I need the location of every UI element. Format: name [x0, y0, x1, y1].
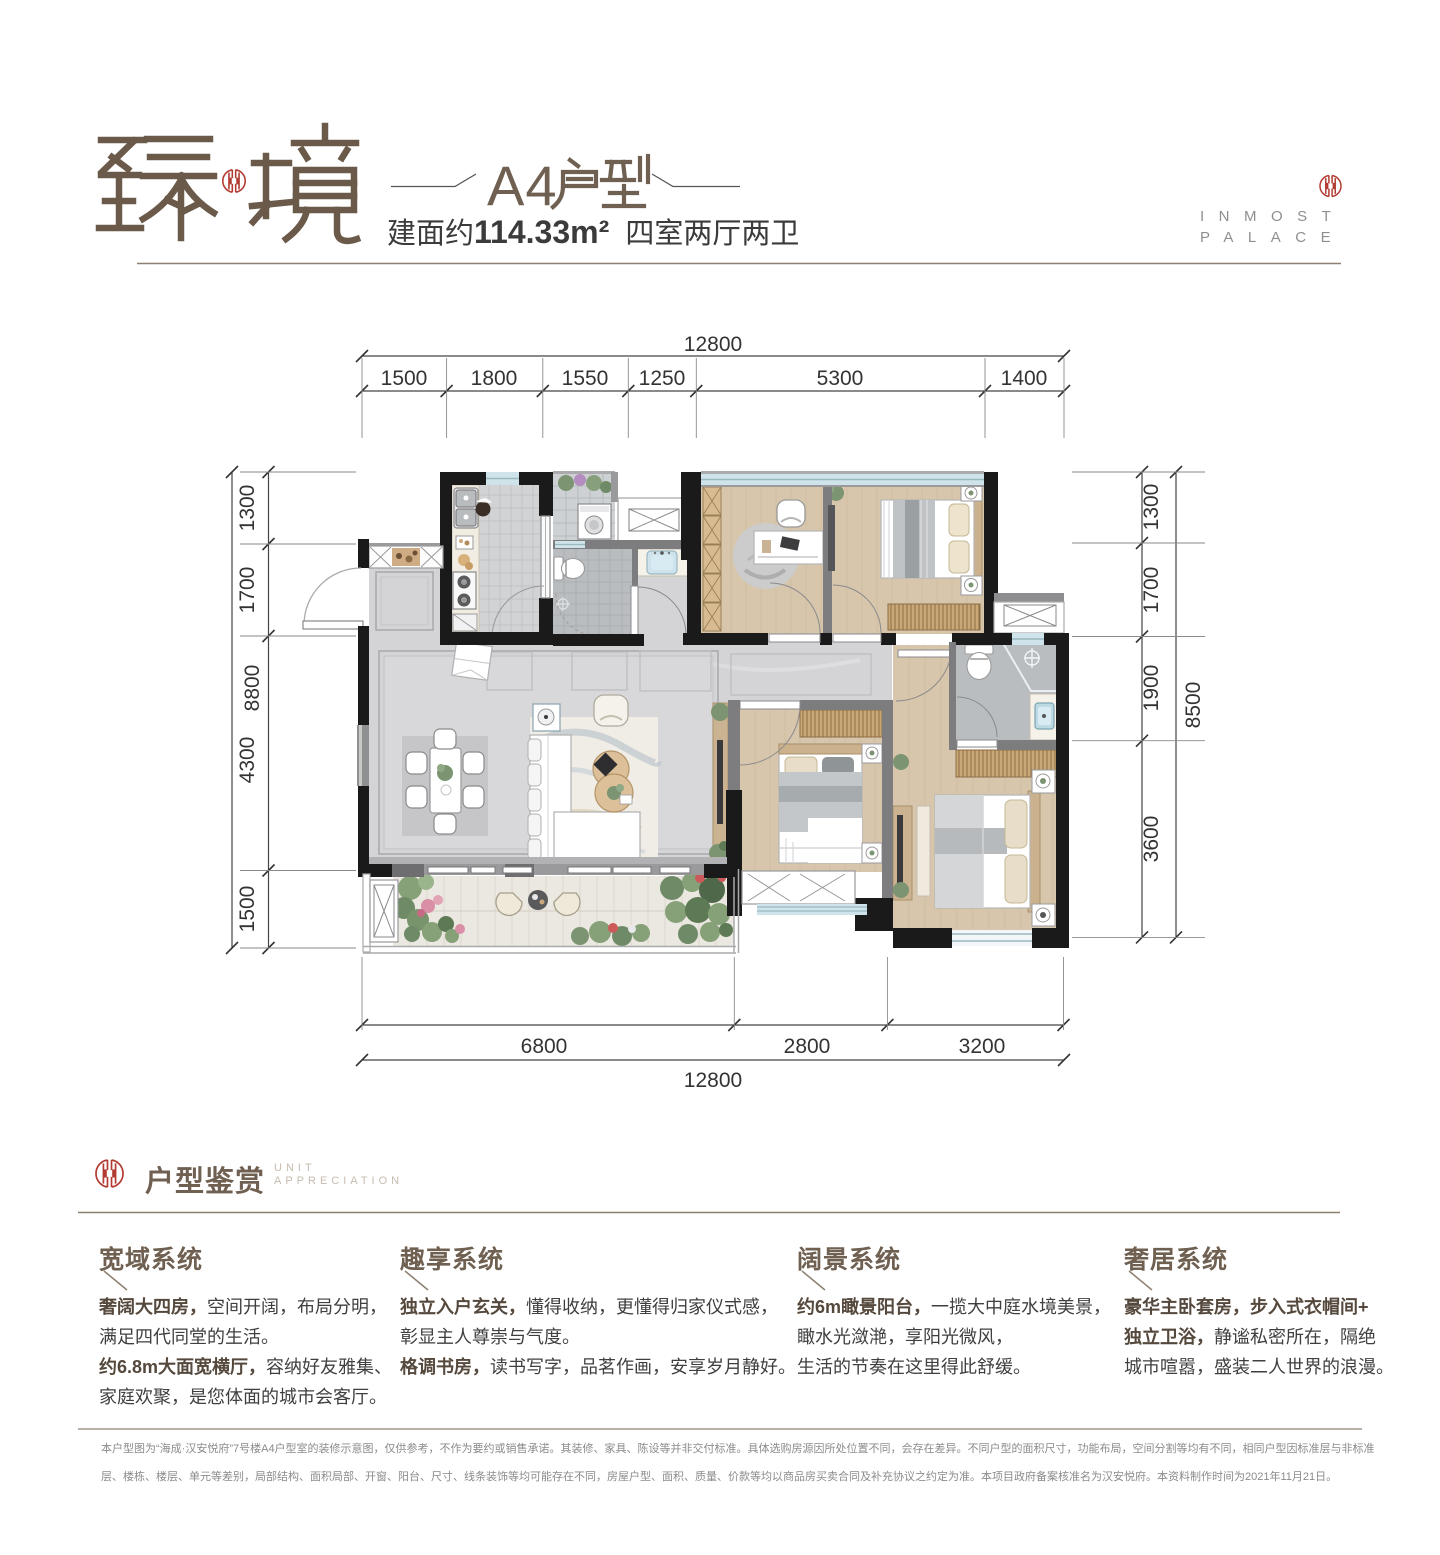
svg-text:5300: 5300 [817, 367, 864, 390]
svg-text:1700: 1700 [236, 567, 259, 614]
svg-text:1400: 1400 [1001, 367, 1048, 390]
svg-text:2800: 2800 [784, 1035, 831, 1058]
svg-text:12800: 12800 [684, 333, 742, 356]
svg-text:1700: 1700 [1140, 567, 1163, 614]
svg-text:1800: 1800 [471, 367, 518, 390]
svg-text:4300: 4300 [236, 737, 259, 784]
svg-text:1500: 1500 [236, 886, 259, 933]
svg-text:1300: 1300 [1140, 484, 1163, 531]
svg-text:3600: 3600 [1140, 816, 1163, 863]
svg-text:6800: 6800 [521, 1035, 568, 1058]
svg-text:1250: 1250 [639, 367, 686, 390]
svg-text:3200: 3200 [959, 1035, 1006, 1058]
svg-text:1300: 1300 [236, 485, 259, 532]
svg-text:1500: 1500 [381, 367, 428, 390]
svg-text:1550: 1550 [562, 367, 609, 390]
svg-text:1900: 1900 [1140, 665, 1163, 712]
svg-text:12800: 12800 [684, 1069, 742, 1092]
svg-text:8500: 8500 [1182, 682, 1205, 729]
svg-text:8800: 8800 [241, 665, 264, 712]
